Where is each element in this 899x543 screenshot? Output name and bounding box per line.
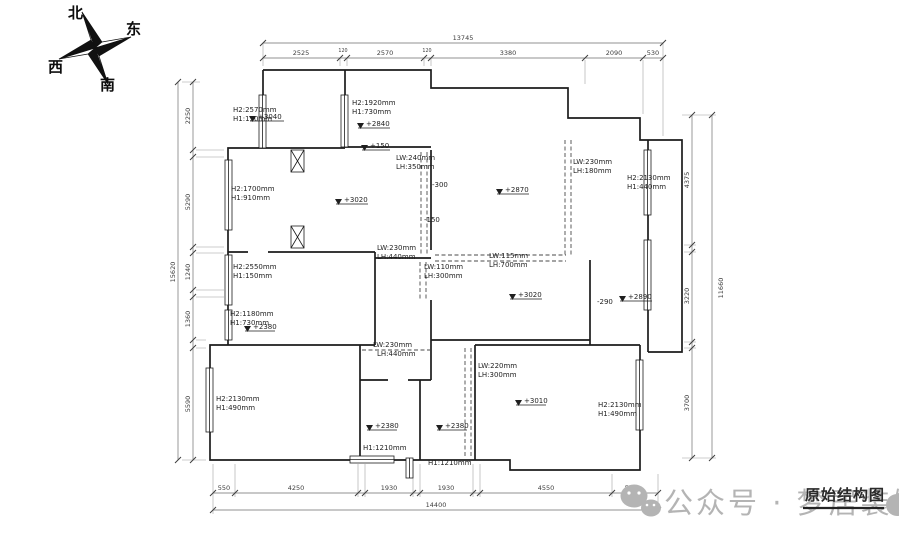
dim-label: 530 (647, 49, 659, 57)
annotation: H1:730mm (352, 108, 391, 116)
floor-plan-drawing: 北 东 西 南 13745 2525 120 2570 120 3380 209… (0, 0, 899, 543)
annotation: H2:2550mm (233, 263, 277, 271)
dim-label: 120 (422, 48, 431, 54)
annotation: LH:440mm (377, 253, 416, 261)
dim-label: 550 (218, 484, 230, 492)
dim-right-total: 11660 (717, 278, 725, 299)
dim-label: 1930 (438, 484, 455, 492)
annotation: H2:2130mm (627, 174, 671, 182)
annotation: H2:2130mm (598, 401, 642, 409)
elevation-label: +3010 (524, 397, 548, 405)
elevation-label: +3020 (344, 196, 368, 204)
dim-label: 4250 (288, 484, 305, 492)
dim-label: 3220 (683, 288, 691, 305)
elevation-label: +2840 (366, 120, 390, 128)
dim-label: 120 (338, 48, 347, 54)
annotation: H1:1210mm (428, 459, 472, 467)
dim-label: 3700 (683, 395, 691, 412)
annotation: LH:700mm (489, 261, 528, 269)
elevation-label: +2870 (505, 186, 529, 194)
annotation: H1:910mm (231, 194, 270, 202)
columns (291, 150, 304, 248)
compass-south-label: 南 (100, 76, 115, 94)
annotation: LW:110mm (424, 263, 463, 271)
annotation: LH:300mm (478, 371, 517, 379)
dim-label: 1930 (381, 484, 398, 492)
elevation-label: +2380 (375, 422, 399, 430)
dim-label: 2090 (606, 49, 623, 57)
dim-label: 2250 (184, 108, 192, 125)
annotation: LH:300mm (424, 272, 463, 280)
annotation: LW:230mm (377, 244, 416, 252)
annotation: H2:1700mm (231, 185, 275, 193)
dim-label: 2525 (293, 49, 310, 57)
annotation: LH:440mm (377, 350, 416, 358)
annotation: LH:180mm (573, 167, 612, 175)
dim-label: 4550 (538, 484, 555, 492)
elevation-label: +2380 (445, 422, 469, 430)
floor-plan-page: 北 东 西 南 13745 2525 120 2570 120 3380 209… (0, 0, 899, 543)
dim-label: 2570 (377, 49, 394, 57)
dim-left-total: 15620 (169, 262, 177, 283)
elevation-label: +2380 (253, 323, 277, 331)
annotation: LH:350mm (396, 163, 435, 171)
annotation: H1:490mm (216, 404, 255, 412)
annotation: LW:220mm (478, 362, 517, 370)
elevation-label: +2890 (628, 293, 652, 301)
annotation: H2:1920mm (352, 99, 396, 107)
dim-label: 1240 (184, 264, 192, 281)
elevation-label: +3020 (518, 291, 542, 299)
annotation: LW:230mm (373, 341, 412, 349)
annotations: H2:2570mm H1:130mm +3040 H2:1920mm H1:73… (216, 99, 671, 467)
compass-rose: 北 东 西 南 (48, 4, 141, 94)
dim-label: 5590 (184, 396, 192, 413)
annotation: LW:115mm (489, 252, 528, 260)
wechat-icon (621, 485, 662, 517)
dim-label: 4375 (683, 172, 691, 189)
annotation: LW:230mm (573, 158, 612, 166)
annotation: H2:2130mm (216, 395, 260, 403)
dim-label: 3380 (500, 49, 517, 57)
compass-west-label: 西 (48, 58, 63, 76)
compass-east-label: 东 (126, 20, 141, 38)
drawing-title: 原始结构图 (805, 486, 885, 504)
elevation-label: +3040 (258, 113, 282, 121)
annotation: -290 (597, 298, 613, 306)
annotation: H1:490mm (598, 410, 637, 418)
annotation: H2:1180mm (230, 310, 274, 318)
annotation: -150 (424, 216, 440, 224)
annotation: -300 (432, 181, 448, 189)
annotation: H1:150mm (233, 272, 272, 280)
windows (206, 95, 651, 478)
dim-top-total: 13745 (453, 34, 474, 42)
compass-north-label: 北 (68, 4, 83, 22)
elevation-label: +150 (370, 142, 389, 150)
dim-label: 1360 (184, 311, 192, 328)
annotation: H1:440mm (627, 183, 666, 191)
dim-bottom-total: 14400 (426, 501, 447, 509)
dim-label: 5290 (184, 194, 192, 211)
annotation: LW:240mm (396, 154, 435, 162)
annotation: H1:1210mm (363, 444, 407, 452)
